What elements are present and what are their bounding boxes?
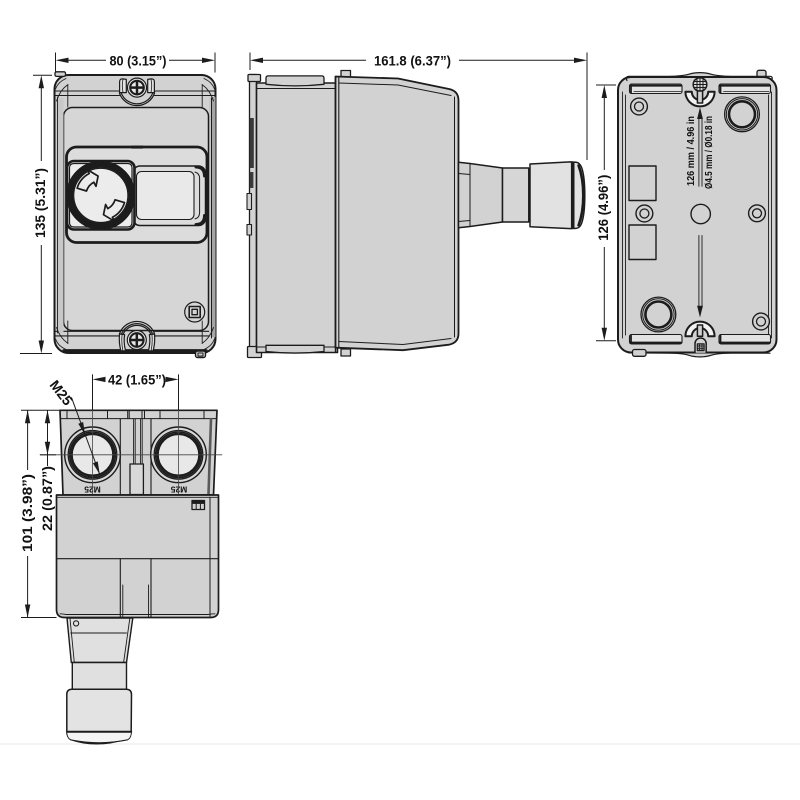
svg-text:42 (1.65”): 42 (1.65”) <box>108 371 166 387</box>
svg-text:22 (0.87”): 22 (0.87”) <box>39 466 55 531</box>
svg-text:101 (3.98”): 101 (3.98”) <box>19 474 35 552</box>
svg-text:80 (3.15”): 80 (3.15”) <box>110 52 167 68</box>
svg-text:126 mm / 4.96 in: 126 mm / 4.96 in <box>686 116 697 186</box>
svg-text:135 (5.31”): 135 (5.31”) <box>32 168 48 238</box>
svg-text:Ø4.5 mm / Ø0.18 in: Ø4.5 mm / Ø0.18 in <box>704 116 715 189</box>
svg-text:126 (4.96”): 126 (4.96”) <box>595 175 611 241</box>
svg-text:161.8 (6.37”): 161.8 (6.37”) <box>374 52 451 68</box>
